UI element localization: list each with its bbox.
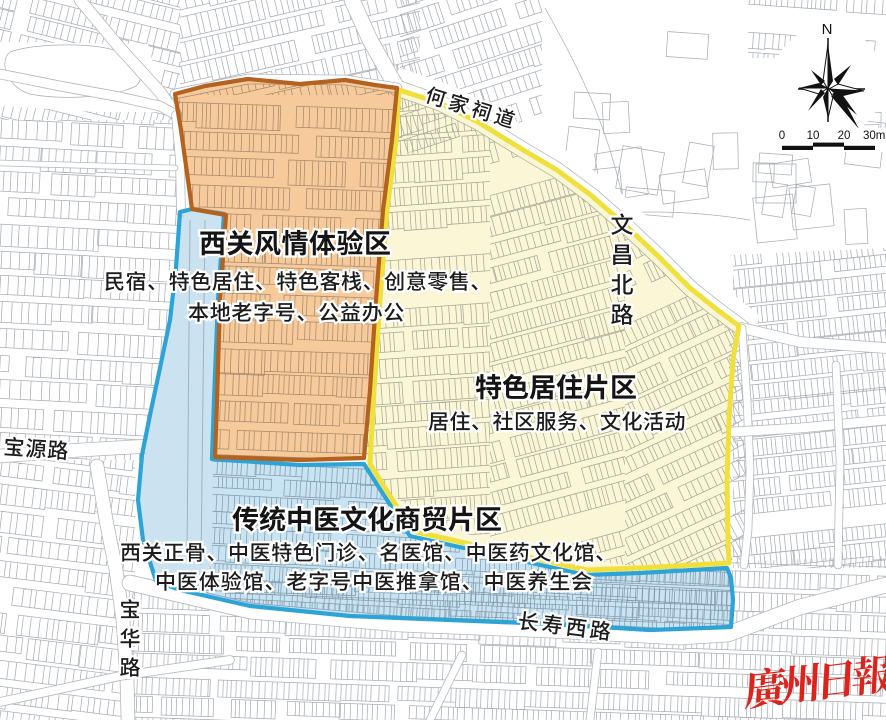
- svg-text:中医体验馆、老字号中医推拿馆、中医养生会: 中医体验馆、老字号中医推拿馆、中医养生会: [155, 566, 593, 596]
- svg-text:西关风情体验区: 西关风情体验区: [199, 222, 392, 261]
- svg-text:0: 0: [779, 130, 785, 142]
- svg-text:特色居住片区: 特色居住片区: [475, 366, 637, 405]
- svg-text:10: 10: [807, 130, 820, 142]
- svg-text:西关正骨、中医特色门诊、名医馆、中医药文化馆、: 西关正骨、中医特色门诊、名医馆、中医药文化馆、: [120, 537, 617, 567]
- svg-text:30m: 30m: [863, 130, 885, 142]
- svg-text:民宿、特色居住、特色客栈、创意零售、: 民宿、特色居住、特色客栈、创意零售、: [104, 266, 492, 296]
- svg-text:文昌北路: 文昌北路: [611, 206, 634, 330]
- svg-text:宝源路: 宝源路: [3, 431, 71, 466]
- svg-text:居住、社区服务、文化活动: 居住、社区服务、文化活动: [428, 406, 686, 436]
- svg-text:传统中医文化商贸片区: 传统中医文化商贸片区: [232, 498, 502, 537]
- svg-text:20: 20: [838, 130, 851, 142]
- svg-text:N: N: [822, 21, 833, 38]
- svg-text:宝华路: 宝华路: [120, 594, 141, 682]
- svg-text:本地老字号、公益办公: 本地老字号、公益办公: [188, 297, 405, 327]
